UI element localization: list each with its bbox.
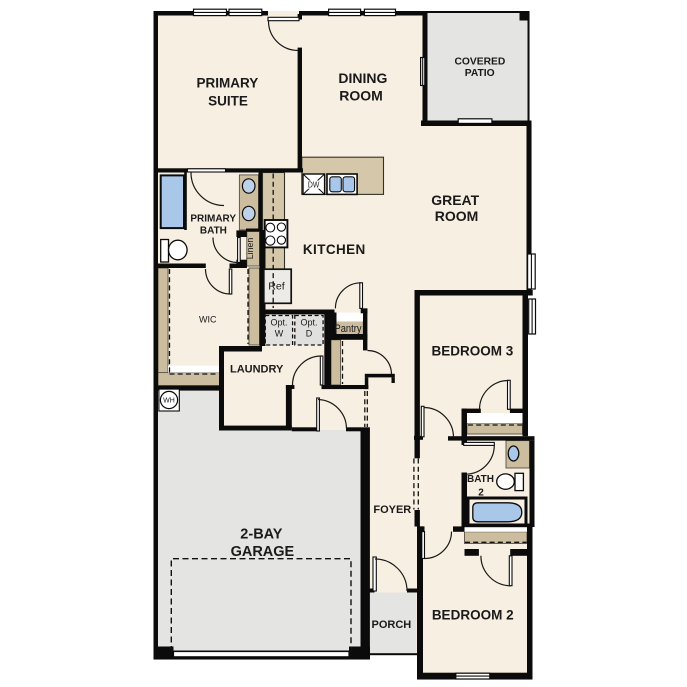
svg-text:PATIO: PATIO [465, 68, 495, 79]
svg-text:Ref: Ref [268, 281, 285, 293]
svg-text:FOYER: FOYER [373, 504, 411, 516]
svg-text:2: 2 [478, 488, 484, 499]
svg-text:LAUNDRY: LAUNDRY [230, 364, 284, 376]
svg-text:Pantry: Pantry [335, 323, 362, 335]
svg-text:DINING: DINING [338, 70, 387, 86]
svg-text:BATH: BATH [200, 226, 227, 237]
svg-text:BEDROOM 3: BEDROOM 3 [432, 344, 514, 359]
svg-text:DW: DW [308, 180, 320, 190]
svg-text:Linen: Linen [245, 238, 256, 260]
svg-text:PRIMARY: PRIMARY [197, 75, 259, 90]
svg-text:GREAT: GREAT [431, 192, 479, 208]
svg-text:KITCHEN: KITCHEN [303, 242, 366, 257]
svg-text:BEDROOM 2: BEDROOM 2 [432, 608, 514, 623]
svg-text:PORCH: PORCH [372, 619, 412, 631]
svg-text:ROOM: ROOM [339, 88, 383, 104]
svg-text:W: W [275, 329, 284, 339]
svg-text:WIC: WIC [199, 314, 217, 324]
svg-text:Opt.: Opt. [300, 318, 317, 328]
svg-text:GARAGE: GARAGE [231, 544, 295, 560]
svg-text:PRIMARY: PRIMARY [190, 213, 236, 224]
svg-text:ROOM: ROOM [435, 208, 479, 224]
svg-text:D: D [306, 329, 313, 339]
svg-text:BATH: BATH [467, 474, 494, 485]
svg-text:Opt.: Opt. [270, 318, 287, 328]
svg-text:WH: WH [163, 398, 175, 405]
svg-text:COVERED: COVERED [454, 56, 505, 67]
svg-text:SUITE: SUITE [208, 93, 248, 108]
svg-text:2-BAY: 2-BAY [240, 527, 283, 543]
